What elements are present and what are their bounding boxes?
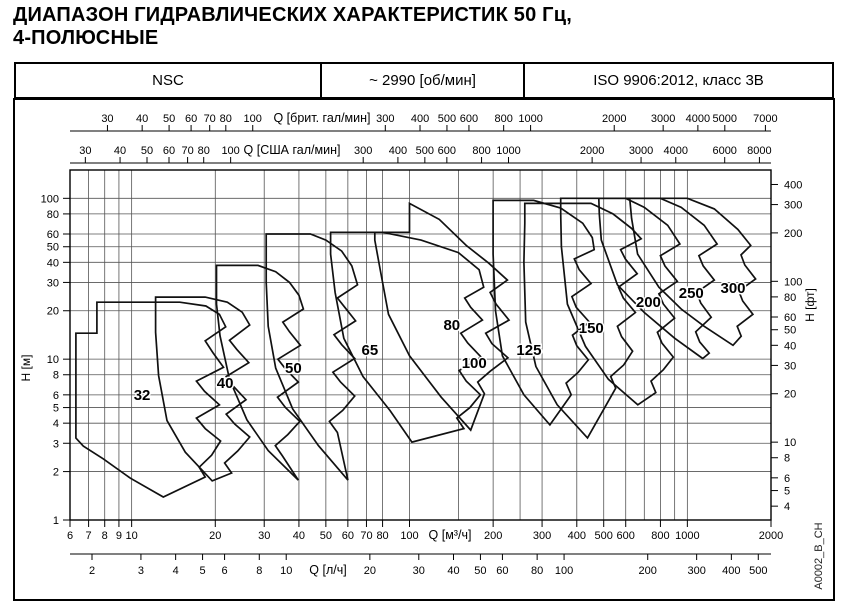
tick-label-h-ft: 60	[784, 312, 796, 324]
tick-label-h-ft: 40	[784, 340, 796, 352]
tick-label: 600	[460, 113, 478, 125]
tick-label-q-m3h: 400	[568, 530, 586, 542]
tick-label-q-m3h: 6	[67, 530, 73, 542]
tick-label-ls: 2	[89, 565, 95, 577]
envelope-label-40: 40	[217, 375, 234, 392]
tick-label-h-m: 4	[53, 418, 59, 430]
tick-label: 400	[411, 113, 429, 125]
envelope-label-50: 50	[285, 360, 302, 377]
tick-label-ls: 5	[200, 565, 206, 577]
envelope-label-65: 65	[362, 342, 379, 359]
tick-label-q-m3h: 50	[320, 530, 332, 542]
tick-label-q-m3h: 40	[293, 530, 305, 542]
tick-label-h-m: 30	[47, 277, 59, 289]
tick-label-h-ft: 80	[784, 292, 796, 304]
tick-label-h-m: 60	[47, 229, 59, 241]
tick-label: 400	[389, 145, 407, 157]
tick-label: 5000	[713, 113, 737, 125]
tick-label-ls: 80	[531, 565, 543, 577]
tick-label-q-m3h: 30	[258, 530, 270, 542]
tick-label-ls: 3	[138, 565, 144, 577]
envelope-label-100: 100	[462, 355, 487, 372]
tick-label: 500	[416, 145, 434, 157]
tick-label-h-ft: 6	[784, 473, 790, 485]
tick-label-h-ft: 8	[784, 453, 790, 465]
tick-label: 40	[136, 113, 148, 125]
axis-title-ls: Q [л/ч]	[309, 563, 346, 577]
tick-label: 40	[114, 145, 126, 157]
tick-label-h-ft: 100	[784, 276, 802, 288]
tick-label-h-m: 6	[53, 390, 59, 402]
tick-label-q-m3h: 70	[360, 530, 372, 542]
tick-label-q-m3h: 600	[617, 530, 635, 542]
tick-label: 100	[244, 113, 262, 125]
tick-label-h-ft: 50	[784, 325, 796, 337]
tick-label-q-m3h: 80	[376, 530, 388, 542]
tick-label: 800	[472, 145, 490, 157]
tick-label-h-m: 8	[53, 370, 59, 382]
envelope-100	[375, 203, 509, 430]
tick-label: 60	[185, 113, 197, 125]
tick-label-h-ft: 10	[784, 437, 796, 449]
tick-label-ls: 8	[256, 565, 262, 577]
plot-border	[70, 170, 771, 520]
envelope-label-200: 200	[636, 294, 661, 311]
tick-label-q-m3h: 800	[651, 530, 669, 542]
tick-label-h-ft: 4	[784, 501, 790, 513]
page: ДИАПАЗОН ГИДРАВЛИЧЕСКИХ ХАРАКТЕРИСТИК 50…	[0, 0, 848, 602]
tick-label-ls: 200	[639, 565, 657, 577]
tick-label-h-m: 2	[53, 467, 59, 479]
tick-label-q-m3h: 20	[209, 530, 221, 542]
tick-label-q-m3h: 60	[342, 530, 354, 542]
envelope-80	[331, 232, 484, 442]
tick-label: 3000	[651, 113, 675, 125]
tick-label: 600	[438, 145, 456, 157]
tick-label-q-m3h: 500	[595, 530, 613, 542]
envelope-label-250: 250	[679, 285, 704, 302]
tick-label-ls: 100	[555, 565, 573, 577]
tick-label-q-m3h: 10	[126, 530, 138, 542]
tick-label: 6000	[712, 145, 736, 157]
tick-label-ls: 4	[173, 565, 179, 577]
tick-label-h-m: 80	[47, 209, 59, 221]
tick-label-h-m: 100	[41, 193, 59, 205]
tick-label-ls: 40	[447, 565, 459, 577]
tick-label-q-m3h: 300	[533, 530, 551, 542]
tick-label-h-m: 5	[53, 403, 59, 415]
tick-label: 100	[221, 145, 239, 157]
tick-label-h-m: 3	[53, 438, 59, 450]
tick-label-q-m3h: 200	[484, 530, 502, 542]
tick-label: 50	[163, 113, 175, 125]
tick-label-h-ft: 30	[784, 360, 796, 372]
tick-label: 80	[198, 145, 210, 157]
tick-label: 2000	[602, 113, 626, 125]
tick-label: 300	[376, 113, 394, 125]
tick-label-h-m: 40	[47, 257, 59, 269]
tick-label: 60	[163, 145, 175, 157]
range-chart: 3240506580100125150200250300123456810203…	[0, 0, 848, 602]
envelope-32	[76, 302, 226, 497]
tick-label: 800	[494, 113, 512, 125]
tick-label-q-m3h: 1000	[675, 530, 699, 542]
axis-title: Q [США гал/мин]	[244, 143, 341, 157]
tick-label-ls: 300	[687, 565, 705, 577]
tick-label-q-m3h: 8	[102, 530, 108, 542]
tick-label-h-ft: 200	[784, 228, 802, 240]
tick-label: 1000	[518, 113, 542, 125]
envelope-200	[561, 198, 680, 404]
tick-label: 4000	[686, 113, 710, 125]
tick-label: 50	[141, 145, 153, 157]
tick-label: 8000	[747, 145, 771, 157]
axis-title: Q [брит. гал/мин]	[273, 111, 370, 125]
tick-label: 1000	[496, 145, 520, 157]
envelope-label-125: 125	[516, 342, 541, 359]
envelope-label-300: 300	[721, 280, 746, 297]
drawing-code: A0002_B_CH	[813, 522, 825, 589]
axis-title-h-ft: H [фт]	[803, 288, 817, 322]
tick-label-h-m: 10	[47, 354, 59, 366]
envelope-300	[630, 198, 756, 345]
tick-label-h-m: 1	[53, 515, 59, 527]
tick-label-ls: 500	[749, 565, 767, 577]
tick-label-ls: 20	[364, 565, 376, 577]
axis-title-h-m: H [м]	[19, 355, 33, 382]
tick-label-ls: 60	[496, 565, 508, 577]
tick-label-ls: 30	[413, 565, 425, 577]
tick-label-q-m3h: 7	[86, 530, 92, 542]
tick-label: 2000	[580, 145, 604, 157]
tick-label-ls: 6	[222, 565, 228, 577]
envelope-label-80: 80	[443, 317, 460, 334]
tick-label: 300	[354, 145, 372, 157]
tick-label-h-m: 50	[47, 242, 59, 254]
tick-label-h-m: 20	[47, 306, 59, 318]
tick-label-h-ft: 5	[784, 486, 790, 498]
tick-label: 70	[181, 145, 193, 157]
envelope-label-150: 150	[579, 320, 604, 337]
tick-label-q-m3h: 9	[116, 530, 122, 542]
envelope-label-32: 32	[134, 387, 151, 404]
tick-label-ls: 50	[474, 565, 486, 577]
tick-label: 30	[101, 113, 113, 125]
tick-label-h-ft: 20	[784, 389, 796, 401]
figure-border	[14, 99, 834, 600]
tick-label-h-ft: 400	[784, 179, 802, 191]
tick-label: 4000	[664, 145, 688, 157]
tick-label-q-m3h: 2000	[759, 530, 783, 542]
tick-label-ls: 10	[280, 565, 292, 577]
tick-label: 70	[204, 113, 216, 125]
tick-label: 80	[220, 113, 232, 125]
tick-label: 500	[438, 113, 456, 125]
tick-label-ls: 400	[722, 565, 740, 577]
tick-label: 30	[79, 145, 91, 157]
tick-label: 3000	[629, 145, 653, 157]
tick-label: 7000	[753, 113, 777, 125]
tick-label-q-m3h: 100	[400, 530, 418, 542]
tick-label-h-ft: 300	[784, 200, 802, 212]
axis-title-q-m3h: Q [м³/ч]	[429, 528, 472, 542]
